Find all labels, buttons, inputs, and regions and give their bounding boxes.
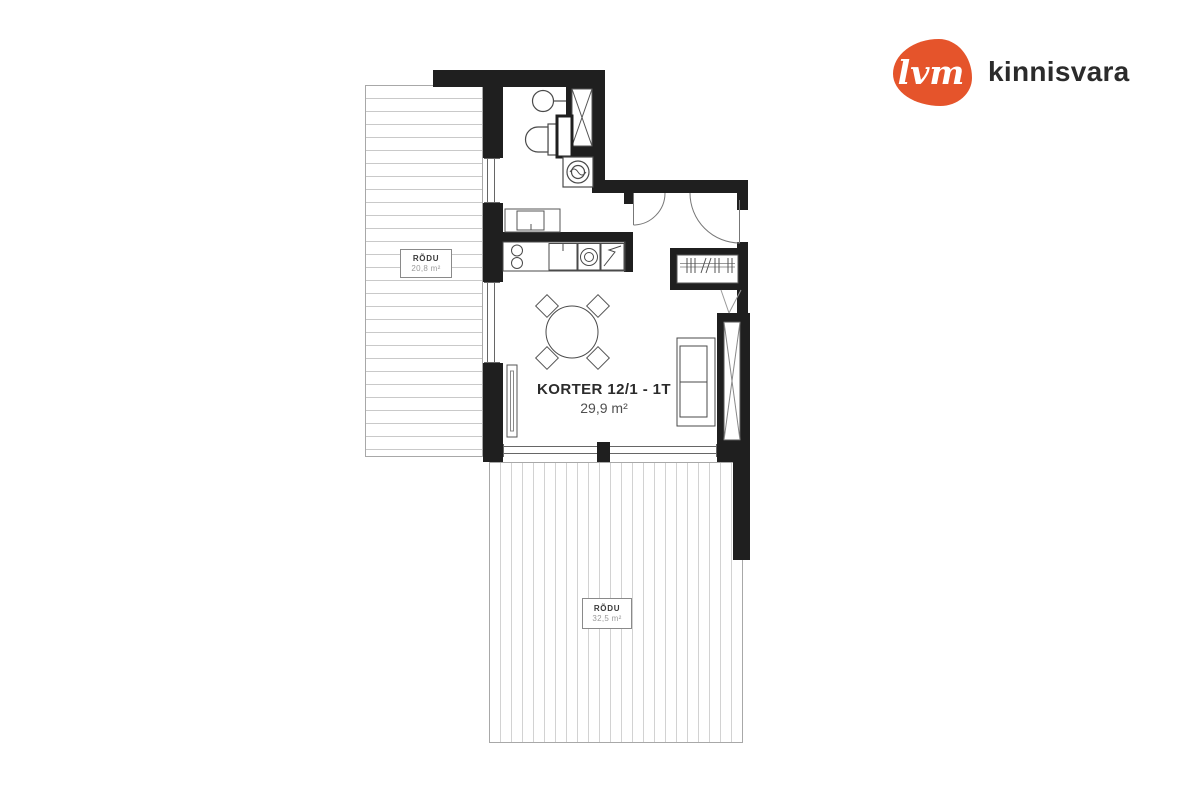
brand-name: kinnisvara <box>988 56 1130 88</box>
chair <box>587 347 610 370</box>
wall-door-jamb-stub <box>624 193 633 204</box>
balcony-left-label: RÕDU 20,8 m² <box>400 249 452 278</box>
window-west-upper <box>484 158 500 203</box>
kitchen-sink <box>578 244 600 271</box>
washing-machine-icon <box>563 157 593 187</box>
logo-text: lvm <box>898 53 968 92</box>
wall-entry-jamb <box>737 180 748 210</box>
balcony-left-area-value: 20,8 m² <box>411 264 440 274</box>
wall-kitchen-divider <box>483 232 633 242</box>
balcony-bottom-area-value: 32,5 m² <box>592 614 621 624</box>
balcony-left-name: RÕDU <box>413 254 439 264</box>
wall-wardrobe-east <box>737 242 748 313</box>
hob-burner <box>512 245 523 256</box>
wall-west-upper <box>483 85 503 158</box>
wall-shaft-block <box>566 87 605 158</box>
window-west-lower <box>484 282 500 363</box>
fridge <box>601 244 624 271</box>
hob-burner <box>512 258 523 269</box>
wall-hall-north <box>605 180 748 193</box>
chair <box>536 347 559 370</box>
bath-sink-icon <box>533 91 567 112</box>
lvm-logo-icon: lvm <box>893 39 972 106</box>
dining-set <box>536 295 610 370</box>
unit-title: KORTER 12/1 - 1T <box>504 381 704 398</box>
unit-label: KORTER 12/1 - 1T 29,9 m² <box>504 381 704 416</box>
wall-top <box>433 70 605 87</box>
window-south <box>503 444 717 457</box>
vanity-cabinet <box>505 209 560 232</box>
kitchen-counter <box>503 242 625 271</box>
unit-area: 29,9 m² <box>504 400 704 416</box>
door-arc-interior <box>634 193 666 225</box>
floor-plan-page: RÕDU 20,8 m² RÕDU 32,5 m² KORTER 12/1 - … <box>0 0 1180 788</box>
door-arc-entry <box>690 193 740 243</box>
balcony-bottom-label: RÕDU 32,5 m² <box>582 598 632 629</box>
wall-west-middle <box>483 203 503 282</box>
dining-table <box>546 306 598 358</box>
wall-kitchen-stub <box>624 232 633 272</box>
wall-south-post <box>597 442 610 462</box>
balcony-bottom-name: RÕDU <box>594 604 620 614</box>
wall-west-lower <box>483 363 503 462</box>
chair <box>587 295 610 318</box>
wall-east-lower <box>733 457 750 560</box>
wall-window-frame-east <box>717 313 750 462</box>
chair <box>536 295 559 318</box>
toilet-icon <box>526 124 559 155</box>
oven <box>549 244 577 271</box>
